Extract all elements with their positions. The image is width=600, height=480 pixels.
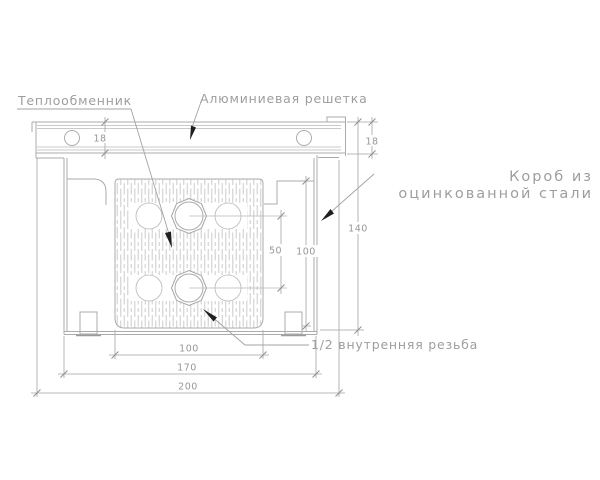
dim-text-100-bottom: 100 <box>179 344 199 355</box>
label-thread: 1/2 внутренняя резьба <box>311 337 478 352</box>
dim-text-18-left: 18 <box>93 134 106 145</box>
heat-exchanger-block <box>115 179 287 328</box>
label-heat-exchanger: Теплообменник <box>17 93 132 108</box>
dim-text-50: 50 <box>269 246 282 257</box>
leader-steel-box <box>321 174 374 221</box>
dimension-pipe-spacing: 50 <box>265 210 286 294</box>
dim-text-18-right: 18 <box>365 137 378 148</box>
grille-hole-right <box>297 131 312 146</box>
dimension-inner-height: 100 <box>293 176 319 331</box>
label-box-line2: оцинкованной стали <box>398 186 593 202</box>
arrow-aluminum-grille <box>190 126 196 141</box>
aluminum-grille-rail <box>32 117 346 158</box>
label-box-line1: Короб из <box>509 169 593 185</box>
dim-text-140: 140 <box>348 224 368 235</box>
dimension-grille-height-right: 18 <box>347 117 380 159</box>
dim-text-200: 200 <box>178 382 198 393</box>
label-aluminum-grille: Алюминиевая решетка <box>200 91 368 106</box>
dim-text-170: 170 <box>177 363 197 374</box>
dim-text-100-vertical: 100 <box>296 247 316 258</box>
grille-hole-left <box>65 131 80 146</box>
convector-drawing: 18 18 140 100 50 100 <box>0 0 600 480</box>
dimension-inner-width: 170 <box>58 336 322 378</box>
technical-drawing-canvas: 18 18 140 100 50 100 <box>0 0 600 480</box>
